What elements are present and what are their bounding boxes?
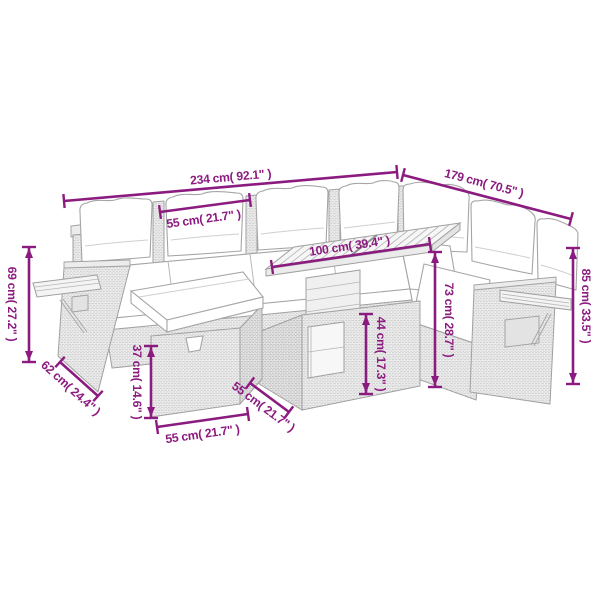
ottoman-handle-notch [186, 336, 203, 352]
dim-left-arm-height-label: 69 cm( 27.2" ) [5, 267, 19, 342]
dim-back-height-label: 85 cm( 33.5" ) [579, 269, 593, 344]
back-cushion [256, 186, 328, 250]
dim-footstool-height-label: 37 cm( 14.6" ) [130, 345, 144, 420]
diagram-canvas: 234 cm( 92.1" ) 179 cm( 70.5" ) 55 cm( 2… [0, 0, 600, 600]
right-armrest [470, 277, 571, 404]
product-dimension-diagram: 234 cm( 92.1" ) 179 cm( 70.5" ) 55 cm( 2… [0, 0, 600, 600]
arm-inset-panel [72, 295, 88, 312]
dim-table-base-height-label: 44 cm( 17.3" ) [374, 317, 388, 392]
dim-table-height-label: 73 cm( 28.7" ) [442, 283, 456, 358]
table-storage-nook [308, 322, 344, 378]
arm-inset-panel [505, 316, 539, 347]
back-cushion [80, 198, 152, 262]
back-cushion [471, 200, 535, 274]
dim-left-arm-height: 69 cm( 27.2" ) [5, 247, 36, 362]
